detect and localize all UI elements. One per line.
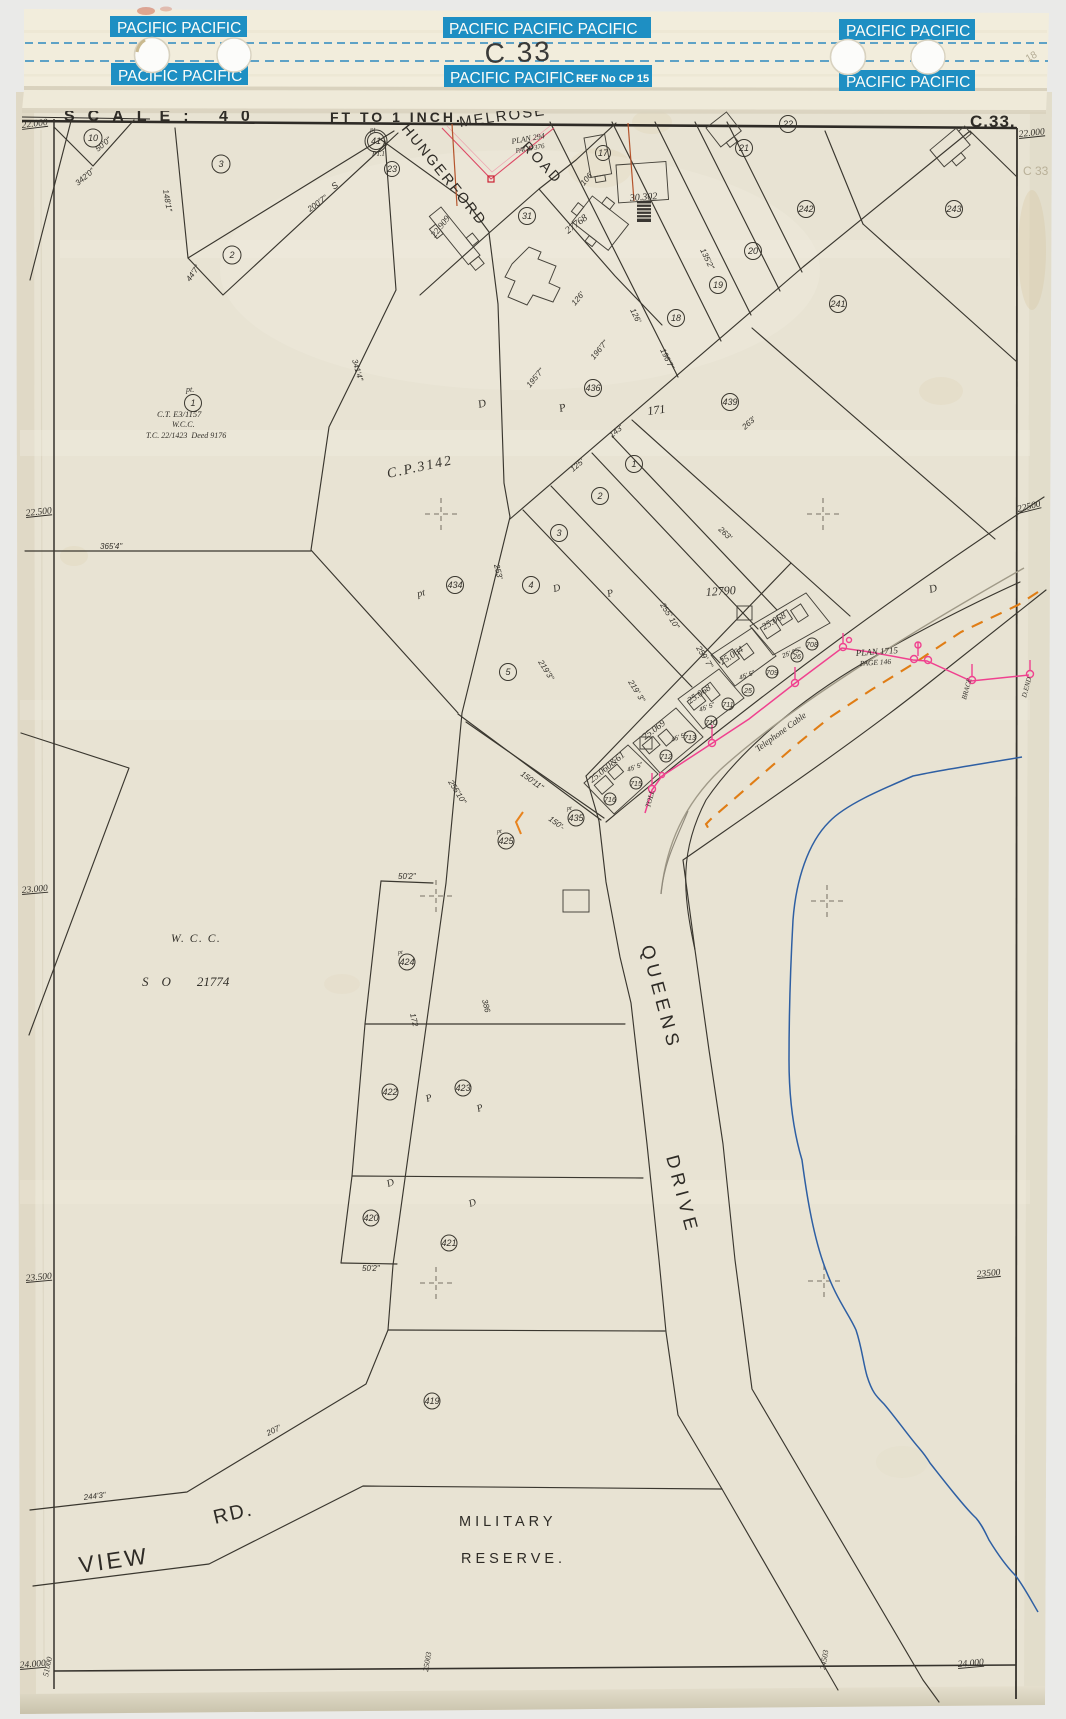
- svg-text:pt: pt: [397, 950, 403, 956]
- svg-text:365'4": 365'4": [100, 542, 123, 551]
- svg-text:19: 19: [713, 280, 723, 290]
- svg-text:710: 710: [705, 720, 717, 727]
- svg-text:243: 243: [945, 204, 961, 214]
- svg-text:20: 20: [747, 246, 758, 256]
- svg-text:12790: 12790: [705, 583, 736, 599]
- svg-text:716: 716: [604, 797, 616, 804]
- svg-text:2: 2: [596, 491, 602, 501]
- svg-text:712: 712: [660, 754, 672, 761]
- svg-text:W. C. C.: W. C. C.: [171, 933, 221, 945]
- svg-text:4: 4: [528, 580, 533, 590]
- svg-text:424: 424: [399, 957, 414, 967]
- svg-text:41: 41: [371, 136, 381, 146]
- svg-text:242: 242: [797, 204, 813, 214]
- svg-text:pt: pt: [566, 806, 572, 812]
- svg-text:422: 422: [382, 1087, 397, 1097]
- svg-text:REF No CP 15: REF No CP 15: [576, 73, 649, 85]
- svg-text:PACIFIC PACIFIC: PACIFIC PACIFIC: [117, 20, 241, 37]
- svg-text:PACIFIC PACIFIC: PACIFIC PACIFIC: [118, 68, 242, 85]
- svg-text:1: 1: [190, 398, 195, 408]
- svg-text:421: 421: [441, 1238, 456, 1248]
- svg-text:17: 17: [598, 148, 609, 158]
- svg-text:C 33: C 33: [484, 36, 552, 69]
- svg-text:PT.1: PT.1: [371, 150, 385, 158]
- svg-text:C 33: C 33: [1023, 164, 1049, 178]
- svg-text:420: 420: [363, 1213, 378, 1223]
- svg-text:709: 709: [766, 670, 778, 677]
- svg-text:3: 3: [556, 528, 561, 538]
- svg-text:3: 3: [218, 159, 223, 169]
- svg-text:425: 425: [498, 836, 514, 846]
- svg-text:50'2": 50'2": [398, 872, 417, 881]
- svg-text:MILITARY: MILITARY: [459, 1514, 557, 1530]
- svg-text:1: 1: [631, 459, 636, 469]
- svg-text:PACIFIC PACIFIC: PACIFIC PACIFIC: [846, 74, 970, 91]
- svg-text:423: 423: [455, 1083, 470, 1093]
- svg-text:23: 23: [386, 164, 397, 174]
- svg-text:W.C.C.: W.C.C.: [172, 420, 195, 429]
- svg-text:30.302: 30.302: [628, 191, 657, 204]
- svg-text:FT TO 1 INCH.: FT TO 1 INCH.: [330, 109, 463, 125]
- svg-text:S O 21774: S O 21774: [142, 974, 230, 989]
- svg-text:10: 10: [88, 133, 98, 143]
- svg-text:708: 708: [806, 642, 818, 649]
- svg-text:2: 2: [228, 250, 234, 260]
- svg-text:23500: 23500: [976, 1268, 1001, 1280]
- svg-text:RESERVE.: RESERVE.: [461, 1551, 566, 1567]
- svg-text:C.33.: C.33.: [970, 112, 1016, 131]
- svg-text:436: 436: [585, 383, 600, 393]
- svg-text:715: 715: [630, 781, 642, 788]
- svg-text:435: 435: [568, 813, 584, 823]
- svg-text:711: 711: [722, 702, 733, 709]
- svg-text:22: 22: [782, 119, 793, 129]
- svg-text:pt.: pt.: [185, 385, 194, 394]
- svg-text:419: 419: [424, 1396, 439, 1406]
- svg-text:C.T. E3/1157: C.T. E3/1157: [157, 409, 202, 419]
- svg-text:pt: pt: [369, 126, 377, 134]
- svg-text:PACIFIC PACIFIC: PACIFIC PACIFIC: [450, 70, 574, 87]
- svg-text:PACIFIC PACIFIC: PACIFIC PACIFIC: [846, 23, 970, 40]
- svg-text:434: 434: [447, 580, 462, 590]
- svg-text:50'2": 50'2": [362, 1264, 381, 1273]
- svg-text:241: 241: [829, 299, 845, 309]
- svg-text:171: 171: [646, 402, 666, 418]
- svg-text:439: 439: [722, 397, 737, 407]
- svg-text:31: 31: [522, 211, 532, 221]
- svg-text:T.C. 22/1423 Deed 9176: T.C. 22/1423 Deed 9176: [146, 431, 226, 440]
- svg-text:21: 21: [738, 143, 749, 153]
- svg-text:18: 18: [671, 313, 681, 323]
- svg-text:pt: pt: [496, 829, 502, 835]
- svg-text:25: 25: [743, 688, 752, 695]
